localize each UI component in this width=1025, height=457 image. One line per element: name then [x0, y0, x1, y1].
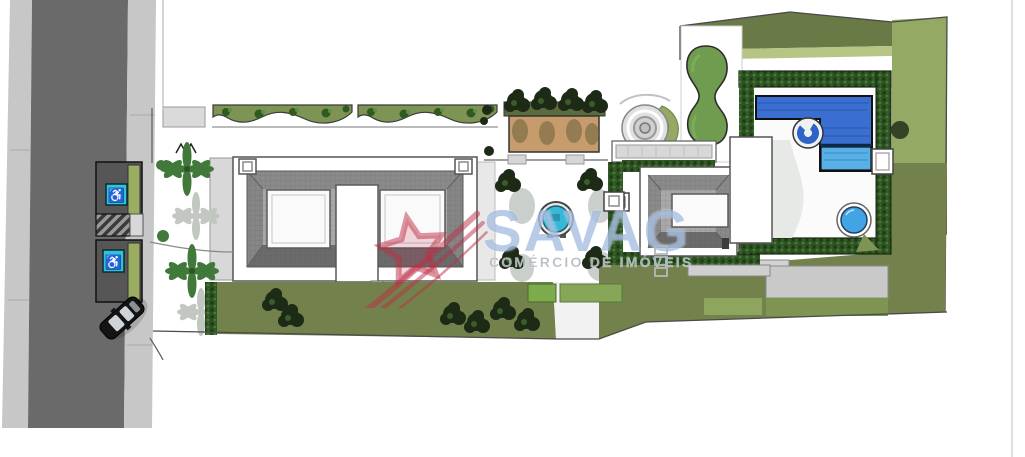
villa1-corner-box-right [455, 159, 472, 174]
hedge-shadow [891, 121, 909, 139]
wheelchair-icon: ♿ [108, 187, 125, 204]
lawn-patch [528, 284, 556, 302]
watermark-building-icon [652, 244, 670, 280]
rear-patio [766, 266, 888, 298]
watermark-star-icon [352, 208, 497, 308]
right-lawn-upper [892, 17, 947, 163]
hedge-column [205, 282, 217, 335]
pool-hedge-top [739, 71, 891, 87]
villa2-rear-step [688, 265, 770, 276]
hatched-no-park-strip [96, 214, 130, 236]
accessible-parking-sign-1: ♿ [106, 184, 127, 205]
parking-bays: ♿ ♿ [96, 162, 143, 302]
shrub [156, 160, 166, 170]
entry-pad [163, 107, 205, 127]
accessible-parking-sign-2: ♿ [103, 250, 124, 272]
site-plan-rendering: ♿ ♿ [0, 0, 1025, 457]
jacuzzi [837, 203, 871, 237]
lawn-strip [766, 298, 888, 316]
pool-spa-circle [793, 118, 823, 148]
shrub [157, 230, 169, 242]
villa2-side-wing [730, 137, 772, 243]
planting-strip-2 [128, 243, 140, 300]
villa1-corner-box-left [239, 159, 256, 174]
curb-pad [130, 214, 143, 236]
lawn-strip [704, 298, 762, 315]
villa1-skylight-left [267, 190, 330, 248]
lawn-patch [560, 284, 622, 302]
planting-strip-1 [128, 165, 140, 216]
villa2-door [722, 238, 729, 249]
pool-side-planter [872, 149, 893, 174]
wheelchair-icon: ♿ [105, 254, 122, 271]
